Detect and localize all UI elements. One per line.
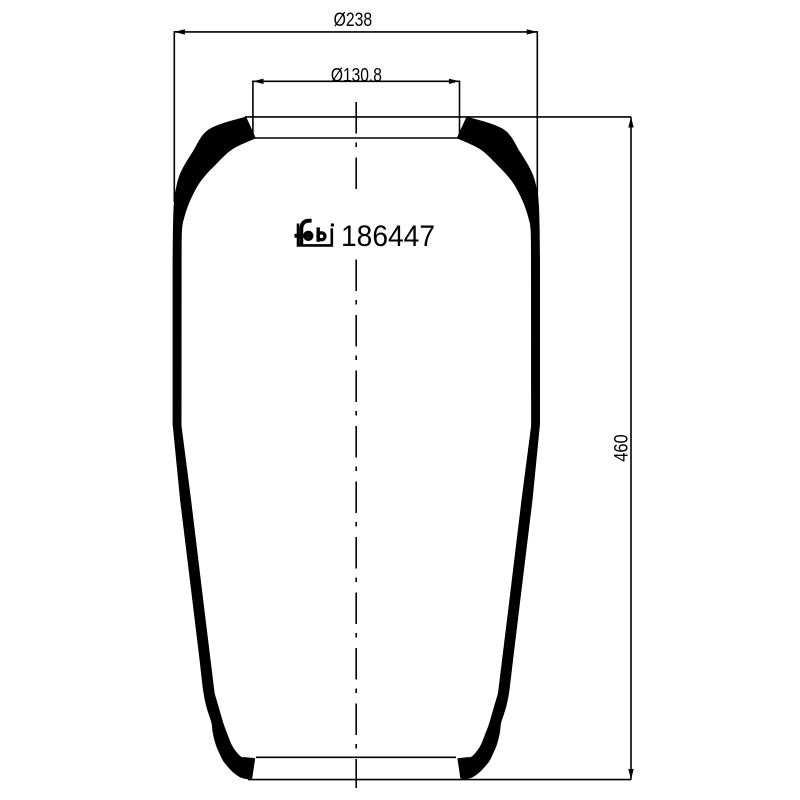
svg-text:460: 460 xyxy=(611,434,633,462)
svg-text:Ø238: Ø238 xyxy=(334,9,373,31)
svg-text:186447: 186447 xyxy=(341,220,435,253)
svg-text:Ø130.8: Ø130.8 xyxy=(331,65,382,87)
